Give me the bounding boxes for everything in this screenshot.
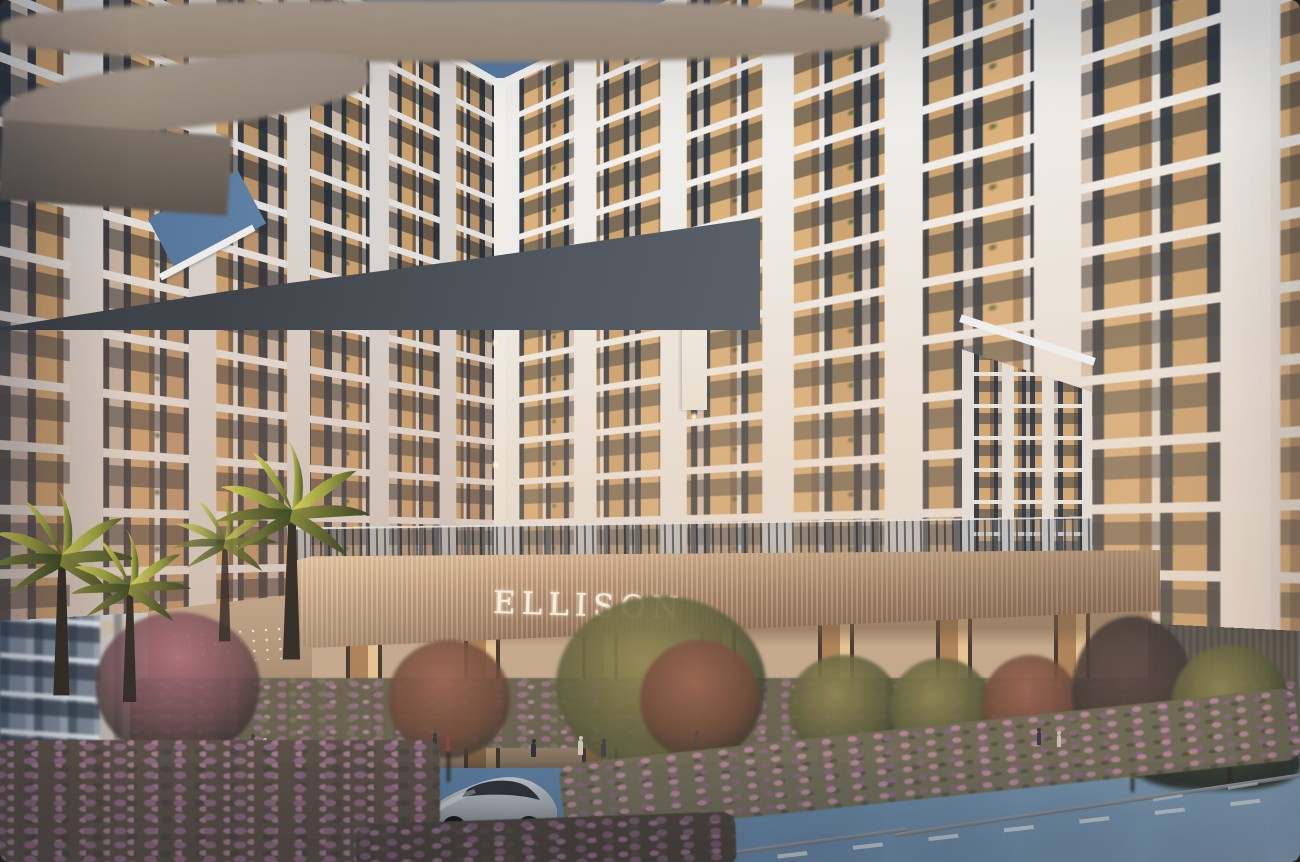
uplight	[492, 460, 500, 470]
pedestrian	[446, 739, 450, 751]
plaza-walkway	[0, 0, 890, 62]
palm-trees	[0, 430, 400, 760]
pedestrian	[601, 743, 606, 757]
pedestrian	[531, 743, 536, 757]
pedestrian	[695, 735, 699, 747]
pedestrian	[1057, 735, 1061, 747]
corner-pier	[494, 78, 505, 592]
walkway-corner	[0, 120, 233, 216]
tree	[640, 640, 760, 760]
uplight	[690, 412, 698, 422]
uplight	[492, 338, 500, 348]
rendering-canvas: ELLISON	[0, 0, 1300, 862]
pedestrian	[1037, 732, 1041, 745]
pedestrian	[578, 740, 583, 755]
